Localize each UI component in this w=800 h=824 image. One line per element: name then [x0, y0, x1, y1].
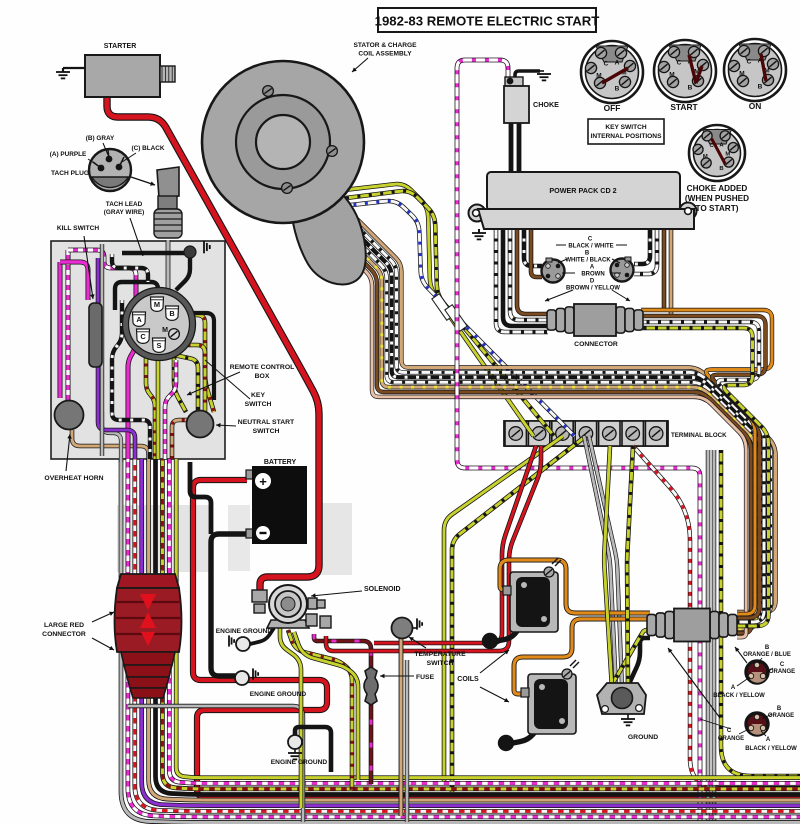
svg-text:STATOR & CHARGE: STATOR & CHARGE	[353, 42, 417, 49]
svg-text:SWITCH: SWITCH	[427, 660, 454, 667]
svg-text:BLACK / YELLOW: BLACK / YELLOW	[713, 693, 765, 699]
svg-text:GROUND: GROUND	[628, 734, 658, 741]
svg-text:WHITE / BLACK: WHITE / BLACK	[565, 258, 611, 264]
svg-text:B: B	[615, 85, 620, 92]
svg-text:TEMPERATURE: TEMPERATURE	[414, 651, 466, 658]
svg-text:TACH PLUG: TACH PLUG	[51, 170, 89, 177]
svg-text:ORANGE: ORANGE	[718, 736, 744, 742]
svg-text:ORANGE / BLUE: ORANGE / BLUE	[743, 652, 791, 658]
svg-text:M: M	[739, 70, 744, 77]
svg-text:B: B	[585, 251, 590, 257]
svg-text:D: D	[590, 279, 595, 285]
svg-text:B: B	[758, 83, 763, 90]
svg-text:CHOKE ADDED: CHOKE ADDED	[687, 184, 748, 193]
svg-text:NEUTRAL START: NEUTRAL START	[238, 419, 295, 426]
svg-text:(C) BLACK: (C) BLACK	[131, 145, 164, 152]
svg-text:M: M	[703, 154, 708, 160]
svg-text:CONNECTOR: CONNECTOR	[574, 341, 618, 348]
svg-text:(A) PURPLE: (A) PURPLE	[50, 151, 87, 158]
svg-text:A: A	[615, 59, 620, 66]
svg-text:1982-83 REMOTE ELECTRIC START: 1982-83 REMOTE ELECTRIC START	[375, 14, 600, 29]
svg-text:ON: ON	[749, 101, 762, 111]
svg-text:S: S	[157, 341, 162, 350]
svg-text:BLACK / YELLOW: BLACK / YELLOW	[745, 746, 797, 752]
svg-text:SWITCH: SWITCH	[253, 428, 280, 435]
svg-text:C: C	[604, 60, 609, 67]
svg-text:CONNECTOR: CONNECTOR	[42, 631, 86, 638]
svg-text:START: START	[670, 102, 698, 112]
svg-text:FUSE: FUSE	[416, 674, 435, 681]
svg-text:B: B	[169, 309, 174, 318]
svg-text:TERMINAL BLOCK: TERMINAL BLOCK	[671, 432, 727, 439]
svg-text:BLACK / WHITE: BLACK / WHITE	[568, 244, 613, 250]
svg-text:(GRAY WIRE): (GRAY WIRE)	[104, 209, 144, 216]
svg-text:A: A	[731, 685, 736, 691]
svg-text:POWER PACK CD 2: POWER PACK CD 2	[549, 186, 616, 195]
svg-text:M: M	[162, 327, 168, 334]
svg-text:B: B	[688, 84, 693, 91]
svg-text:BOX: BOX	[255, 373, 270, 380]
svg-text:TACH LEAD: TACH LEAD	[106, 201, 143, 208]
svg-text:ORANGE: ORANGE	[769, 669, 795, 675]
svg-text:C: C	[140, 332, 146, 341]
svg-text:B: B	[719, 166, 723, 172]
svg-text:KILL SWITCH: KILL SWITCH	[57, 225, 100, 232]
svg-text:(WHEN PUSHED: (WHEN PUSHED	[685, 194, 749, 203]
svg-text:SOLENOID: SOLENOID	[364, 586, 401, 593]
svg-text:B: B	[777, 706, 782, 712]
svg-text:M: M	[725, 151, 730, 157]
svg-text:COIL ASSEMBLY: COIL ASSEMBLY	[358, 51, 412, 58]
svg-text:(B) GRAY: (B) GRAY	[86, 135, 115, 142]
svg-text:C: C	[780, 662, 785, 668]
svg-text:LARGE RED: LARGE RED	[44, 622, 84, 629]
svg-text:OFF: OFF	[604, 103, 621, 113]
svg-text:M: M	[154, 300, 160, 309]
svg-text:B: B	[765, 645, 770, 651]
svg-text:A: A	[590, 265, 595, 271]
svg-text:A: A	[766, 737, 771, 743]
svg-text:ENGINE GROUND: ENGINE GROUND	[271, 759, 328, 766]
svg-text:CHOKE: CHOKE	[533, 100, 559, 109]
svg-text:BATTERY: BATTERY	[264, 459, 297, 466]
svg-text:ENGINE GROUND: ENGINE GROUND	[250, 691, 307, 698]
svg-text:STARTER: STARTER	[104, 43, 137, 50]
svg-text:C: C	[588, 237, 593, 243]
svg-text:M: M	[596, 72, 601, 79]
svg-text:COILS: COILS	[457, 676, 479, 683]
svg-text:C: C	[677, 59, 682, 66]
svg-text:+: +	[259, 474, 267, 489]
svg-text:TO START): TO START)	[696, 204, 739, 213]
svg-text:C: C	[747, 58, 752, 65]
svg-text:KEY: KEY	[251, 392, 265, 399]
svg-text:OVERHEAT HORN: OVERHEAT HORN	[44, 475, 103, 482]
svg-text:A: A	[136, 315, 142, 324]
svg-text:BROWN: BROWN	[581, 272, 604, 278]
svg-text:KEY SWITCH: KEY SWITCH	[605, 124, 647, 131]
svg-text:SWITCH: SWITCH	[245, 401, 272, 408]
svg-text:ENGINE GROUND: ENGINE GROUND	[216, 628, 273, 635]
svg-text:M: M	[669, 71, 674, 78]
svg-text:REMOTE CONTROL: REMOTE CONTROL	[230, 364, 295, 371]
svg-text:INTERNAL POSITIONS: INTERNAL POSITIONS	[591, 133, 663, 140]
